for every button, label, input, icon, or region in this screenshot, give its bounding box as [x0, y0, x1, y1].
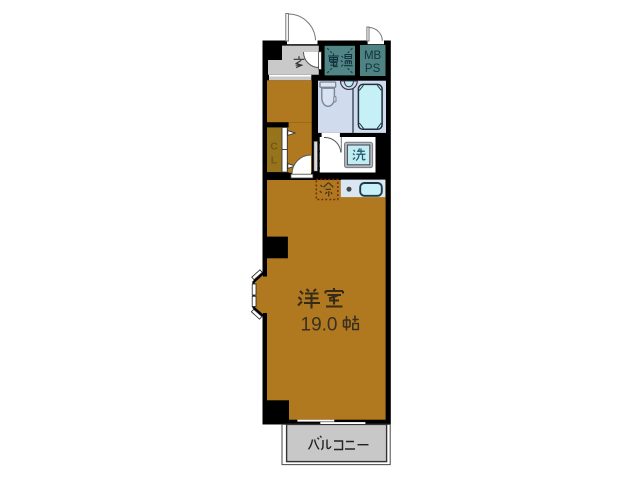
svg-text:PS: PS	[365, 63, 381, 75]
svg-text:C: C	[270, 141, 278, 153]
svg-text:L: L	[271, 155, 278, 167]
svg-text:19.0: 19.0	[301, 315, 338, 336]
svg-text:MB: MB	[364, 50, 382, 62]
